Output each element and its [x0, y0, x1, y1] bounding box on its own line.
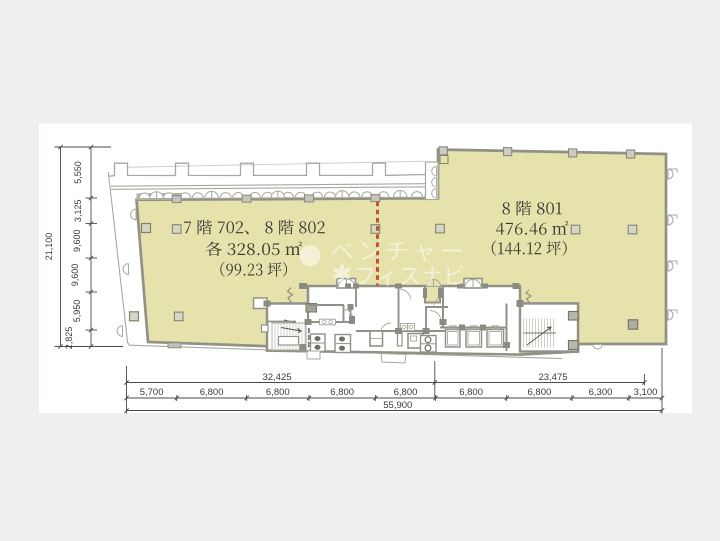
svg-text:3,125: 3,125	[73, 200, 83, 223]
svg-text:6,300: 6,300	[589, 387, 613, 398]
svg-text:2,825: 2,825	[64, 327, 74, 350]
svg-text:55,900: 55,900	[383, 400, 412, 411]
svg-text:6,800: 6,800	[200, 387, 224, 398]
svg-text:5,950: 5,950	[72, 300, 82, 323]
svg-text:5,550: 5,550	[73, 161, 83, 184]
svg-text:32,425: 32,425	[262, 372, 291, 383]
svg-text:6,800: 6,800	[528, 387, 552, 398]
svg-text:5,700: 5,700	[140, 387, 164, 398]
svg-text:6,800: 6,800	[330, 387, 354, 398]
svg-text:21,100: 21,100	[44, 233, 54, 261]
svg-text:9,600: 9,600	[70, 264, 80, 287]
svg-text:23,475: 23,475	[538, 372, 567, 383]
svg-text:3,100: 3,100	[634, 387, 658, 398]
svg-text:9,600: 9,600	[72, 229, 82, 252]
svg-text:6,800: 6,800	[459, 387, 483, 398]
svg-text:6,800: 6,800	[394, 387, 418, 398]
svg-text:6,800: 6,800	[266, 387, 290, 398]
